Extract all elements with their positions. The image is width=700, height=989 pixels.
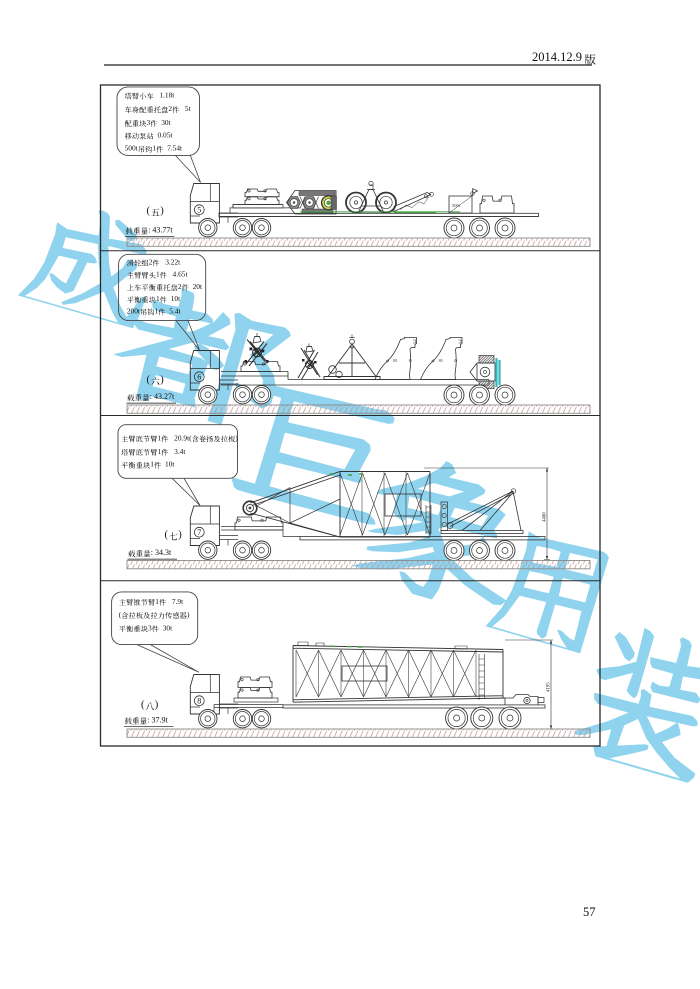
svg-text:7.54t: 7.54t [163,144,183,153]
svg-text:30t: 30t [159,623,173,632]
svg-text:5: 5 [197,206,201,215]
svg-text:): ) [160,206,164,217]
svg-text:3: 3 [147,118,151,127]
svg-text:10t: 10t [161,460,175,469]
svg-text:4195: 4195 [547,682,552,692]
svg-text:57: 57 [583,905,596,919]
svg-text:88: 88 [393,358,397,363]
svg-text:6: 6 [197,373,201,382]
svg-text:20t: 20t [189,282,203,291]
svg-text:(: ( [147,206,151,217]
svg-text:4480: 4480 [543,512,548,522]
svg-text:2: 2 [149,257,153,266]
svg-text:7.9t: 7.9t [166,597,184,606]
svg-text:500t: 500t [452,203,461,208]
svg-text:2014.12.9: 2014.12.9 [532,50,582,64]
svg-text:5.4t: 5.4t [166,306,182,315]
svg-text:10t: 10t [167,294,181,303]
svg-text:: 37.9t: : 37.9t [147,715,168,724]
svg-text:1: 1 [156,270,160,279]
svg-text:2: 2 [178,282,182,291]
svg-text:1: 1 [152,144,156,153]
svg-text:1: 1 [158,433,162,442]
svg-text:3.4t: 3.4t [169,447,187,456]
svg-text:0.05t: 0.05t [154,131,174,140]
svg-text:20.9t(: 20.9t( [169,433,193,442]
svg-text:: 43.77t: : 43.77t [148,225,173,234]
svg-text:3.22t: 3.22t [160,257,181,266]
svg-text:1: 1 [150,460,154,469]
svg-text:): ) [160,375,164,386]
svg-text:1: 1 [155,306,159,315]
svg-text:): ) [178,530,182,541]
svg-text:200t: 200t [127,306,141,315]
svg-text:4.65t: 4.65t [167,270,188,279]
svg-text:): ) [155,700,159,711]
svg-text:1: 1 [158,447,162,456]
svg-text:: 34.3t: : 34.3t [151,548,172,557]
svg-text:: 43.27t: : 43.27t [150,392,175,401]
svg-text:2: 2 [168,104,172,113]
svg-text:(: ( [141,700,145,711]
svg-text:8: 8 [197,697,201,706]
svg-text:1: 1 [156,294,160,303]
svg-text:30t: 30t [158,118,172,127]
svg-text:1: 1 [155,597,159,606]
svg-text:500t: 500t [125,144,139,153]
svg-text:3: 3 [148,623,152,632]
svg-text:(: ( [147,375,151,386]
svg-text:88: 88 [439,358,443,363]
svg-text:5t: 5t [179,104,191,113]
svg-text:7: 7 [197,528,201,537]
svg-text:(: ( [165,530,169,541]
svg-text:1.18t: 1.18t [154,91,175,100]
